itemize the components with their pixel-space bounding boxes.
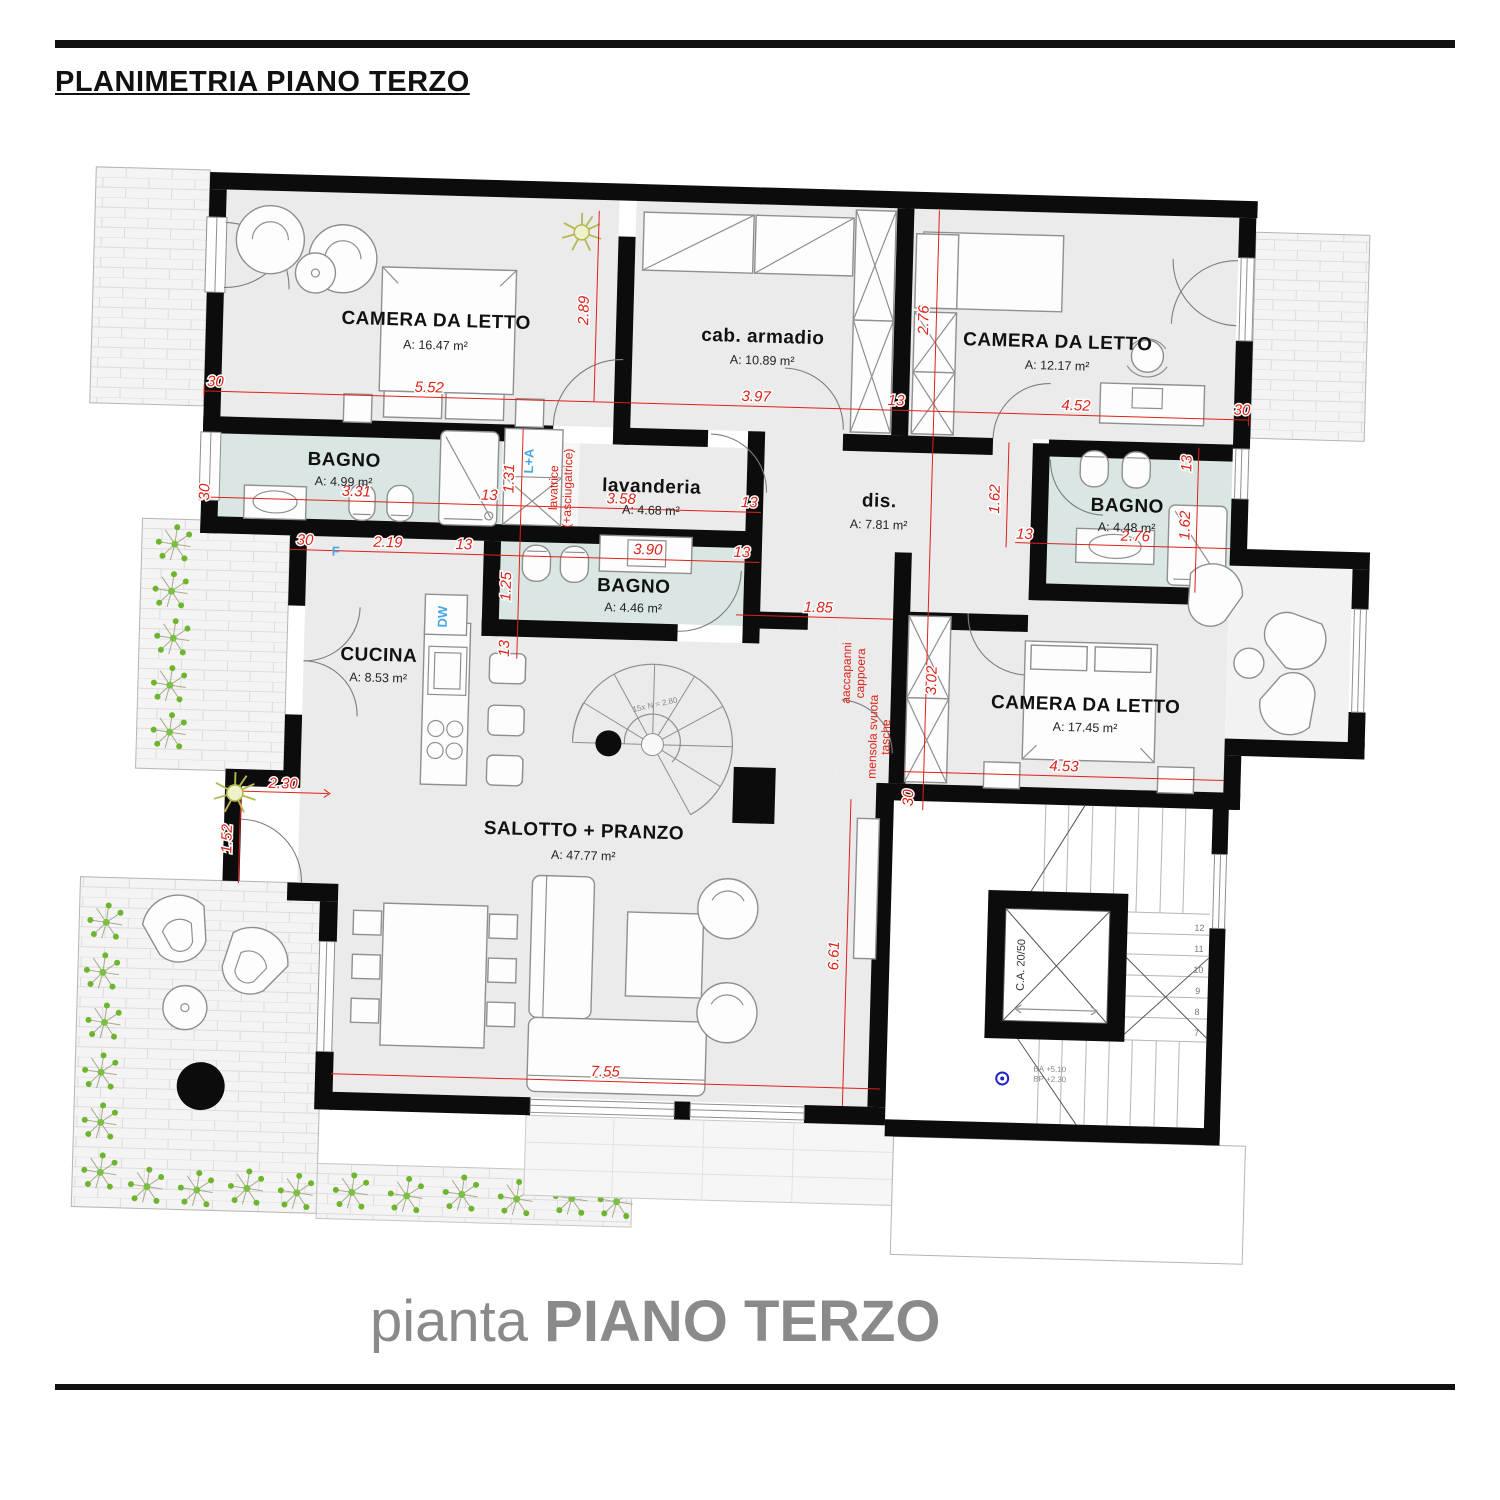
stair-num-10: 10 (1193, 965, 1203, 975)
room-camera3-area: A: 17.45 m² (1053, 720, 1118, 736)
dim-13f: 13 (455, 536, 473, 553)
stair-num-9: 9 (1195, 986, 1200, 996)
top-rule (55, 40, 1455, 48)
dim-219: 2.19 (372, 534, 403, 552)
room-bagno1-name: BAGNO (307, 449, 381, 472)
room-lavanderia-area: A: 4.68 m² (622, 503, 680, 519)
caption-prefix: pianta (370, 1289, 544, 1354)
terrace-bottom-right-outline (890, 1136, 1245, 1264)
room-cucina-area: A: 8.53 m² (349, 670, 407, 686)
dim-452: 4.52 (1061, 397, 1091, 415)
dim-13g: 13 (733, 544, 751, 561)
dim-453: 4.53 (1049, 758, 1079, 776)
planter-left (136, 518, 291, 772)
dim-top-30l: 30 (207, 373, 225, 390)
room-lavanderia-name: lavanderia (602, 475, 702, 499)
elevator-label: C.A. 20/50 (1015, 939, 1028, 991)
note-lavatrice-2: (+asciugatrice) (559, 448, 575, 527)
room-bagno1-area: A: 4.99 m² (315, 474, 373, 490)
dim-131: 1.31 (500, 464, 518, 494)
terrace-bottom-center (524, 1115, 894, 1205)
stair-num-12: 12 (1194, 923, 1204, 933)
note-attaccapanni-2: cappoera (853, 648, 868, 699)
dim-552: 5.52 (414, 379, 444, 397)
dim-661: 6.61 (825, 941, 843, 971)
room-camera2-area: A: 12.17 m² (1025, 358, 1090, 374)
room-bagno2-area: A: 4.48 m² (1098, 520, 1156, 536)
dim-755: 7.55 (590, 1063, 620, 1081)
dim-13a: 13 (888, 392, 906, 409)
sheet-title: PLANIMETRIA PIANO TERZO (55, 66, 470, 99)
label-f: F (332, 544, 340, 559)
stair-num-7: 7 (1194, 1028, 1199, 1038)
dim-162a: 1.62 (986, 484, 1004, 514)
note-lavatrice-1: lavatrice (546, 465, 561, 510)
dim-230: 2.30 (267, 775, 298, 793)
dim-30c: 30 (900, 789, 917, 807)
dim-397: 3.97 (741, 388, 771, 406)
dim-289: 2.89 (575, 295, 593, 326)
dim-30b: 30 (296, 532, 314, 549)
room-dis-area: A: 7.81 m² (850, 517, 908, 533)
dim-13e: 13 (1178, 454, 1195, 472)
dim-13h: 13 (496, 639, 513, 657)
terrace-top-right (1250, 232, 1370, 441)
level-note-1: BA +5.10 (1033, 1064, 1066, 1074)
level-note-2: BP +2.30 (1033, 1074, 1067, 1084)
dim-top-30r: 30 (1233, 402, 1251, 419)
dim-162b: 1.62 (1176, 510, 1194, 540)
room-dis-name: dis. (862, 490, 897, 512)
label-la: L+A (521, 448, 537, 474)
label-dw: DW (435, 605, 451, 628)
room-salotto-area: A: 47.77 m² (551, 848, 616, 864)
dim-13b: 13 (481, 487, 499, 504)
dim-125: 1.25 (497, 571, 515, 601)
dim-390: 3.90 (633, 541, 663, 559)
dim-185: 1.85 (803, 599, 833, 617)
room-cucina-name: CUCINA (340, 644, 417, 667)
dim-276v: 2.76 (915, 305, 933, 336)
stair-num-11: 11 (1194, 944, 1204, 954)
terrace-top-left (90, 167, 211, 406)
room-bagno2-name: BAGNO (1090, 495, 1164, 518)
floor-plan-sheet: PLANIMETRIA PIANO TERZO (0, 0, 1500, 1500)
dim-13d: 13 (1016, 526, 1034, 543)
dim-302: 3.02 (923, 665, 941, 695)
caption-main: PIANO TERZO (544, 1289, 940, 1354)
note-mensola-2: tasche (878, 719, 893, 755)
dim-30v: 30 (196, 483, 213, 501)
elevator: C.A. 20/50 (984, 890, 1128, 1042)
stair-num-8: 8 (1195, 1007, 1200, 1017)
drawing-caption: pianta PIANO TERZO (370, 1288, 941, 1355)
room-camera1-area: A: 16.47 m² (403, 337, 468, 353)
room-bagno3-area: A: 4.46 m² (604, 600, 662, 616)
room-bagno3-name: BAGNO (597, 575, 671, 598)
floor-plan-drawing: 15x N = 2.80 (0, 0, 1500, 1500)
dim-152: 1.52 (218, 823, 236, 853)
room-cabina-name: cab. armadio (701, 325, 825, 349)
room-cabina-area: A: 10.89 m² (730, 353, 795, 369)
bottom-rule (55, 1384, 1455, 1390)
dim-13c: 13 (741, 494, 759, 511)
